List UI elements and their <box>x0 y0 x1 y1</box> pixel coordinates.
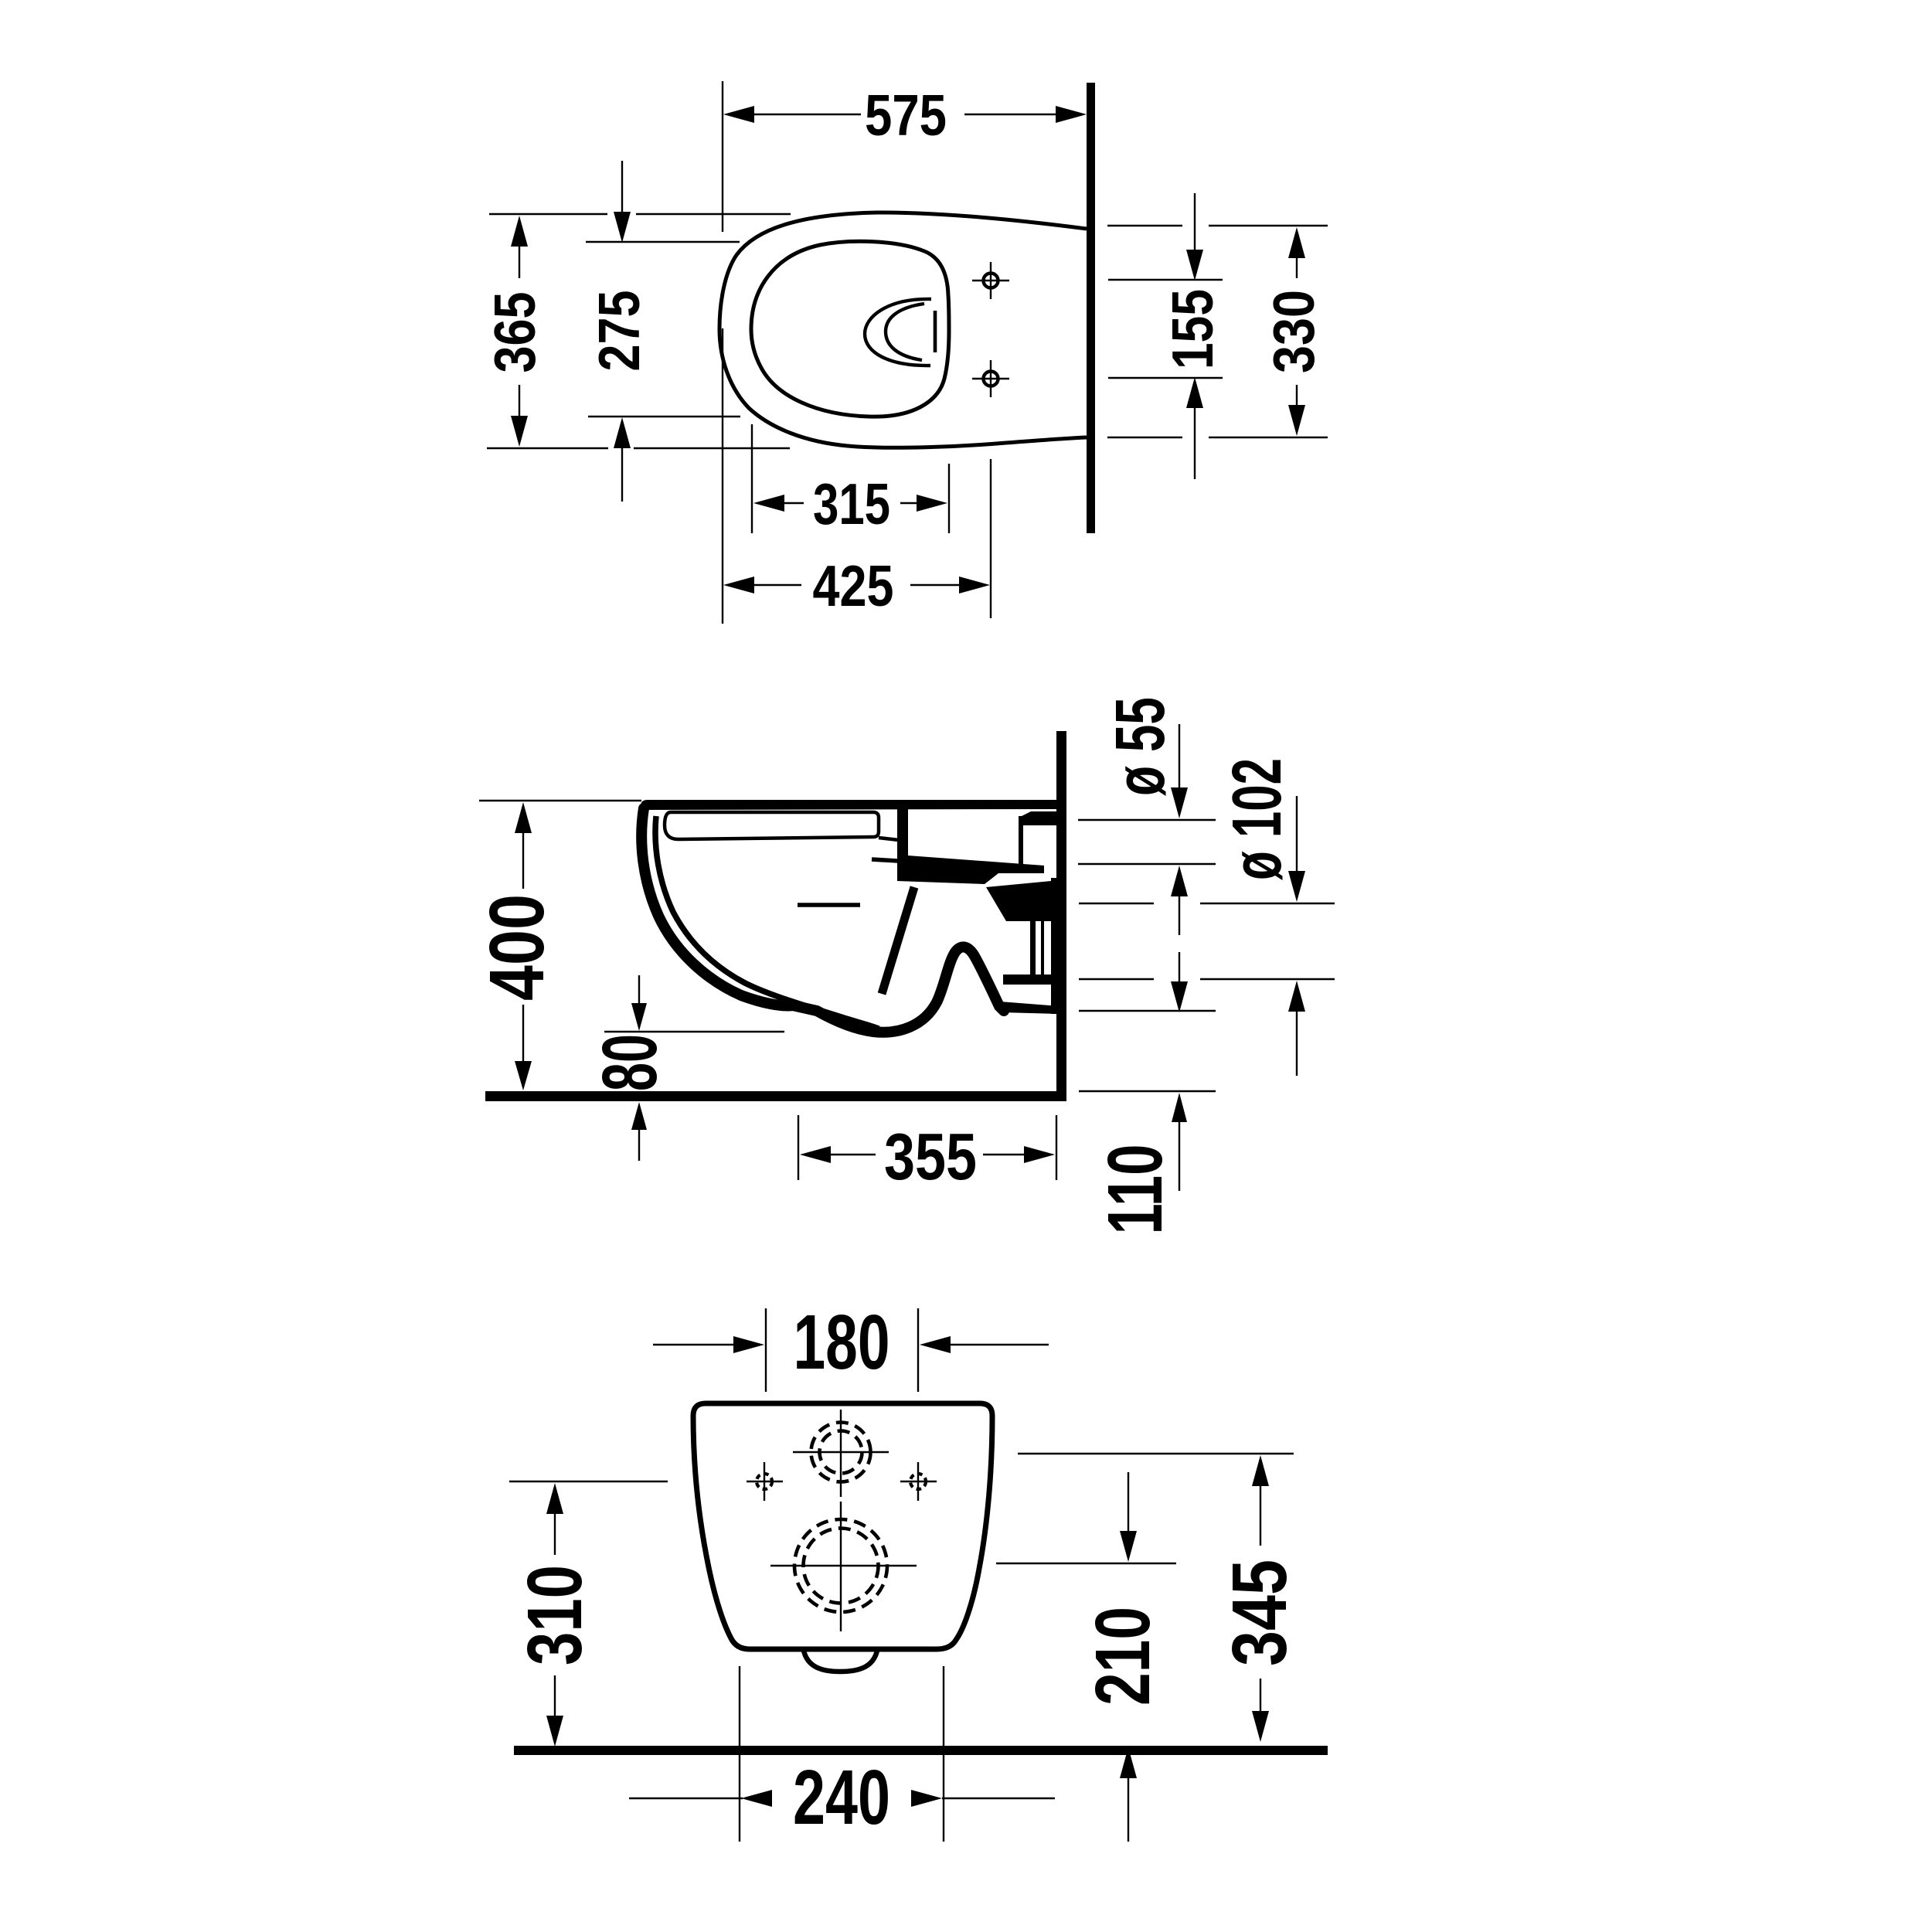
svg-text:310: 310 <box>512 1565 598 1665</box>
svg-text:345: 345 <box>1216 1560 1303 1666</box>
svg-text:80: 80 <box>587 1034 673 1091</box>
svg-text:110: 110 <box>1092 1145 1179 1235</box>
svg-text:365: 365 <box>482 292 547 373</box>
svg-text:210: 210 <box>1080 1607 1166 1706</box>
svg-text:ø 102: ø 102 <box>1219 758 1296 880</box>
svg-text:400: 400 <box>474 894 560 1001</box>
svg-text:ø 55: ø 55 <box>1102 697 1179 796</box>
svg-text:575: 575 <box>865 83 947 148</box>
svg-text:155: 155 <box>1160 289 1225 369</box>
svg-text:240: 240 <box>793 1754 890 1841</box>
svg-text:275: 275 <box>587 291 651 372</box>
svg-text:315: 315 <box>813 471 890 536</box>
svg-text:330: 330 <box>1261 290 1326 373</box>
svg-text:180: 180 <box>794 1299 890 1386</box>
svg-text:355: 355 <box>884 1121 977 1194</box>
svg-text:425: 425 <box>813 553 894 618</box>
